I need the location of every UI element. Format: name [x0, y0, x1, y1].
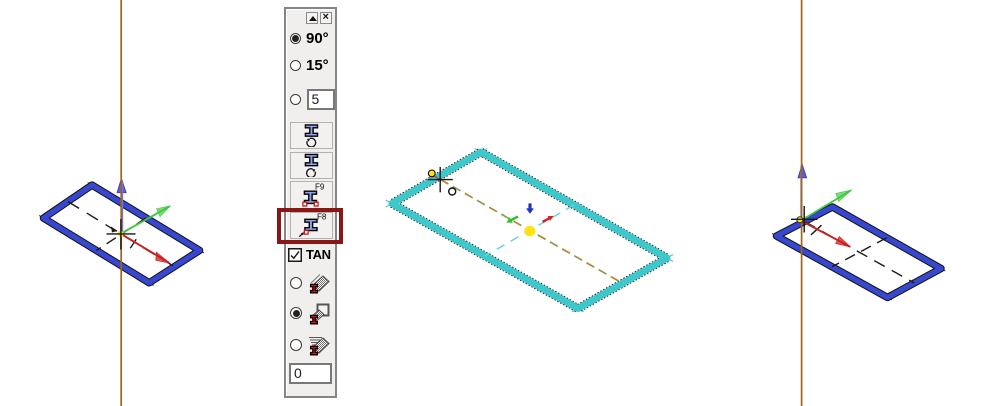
- svg-text:F9: F9: [315, 182, 325, 191]
